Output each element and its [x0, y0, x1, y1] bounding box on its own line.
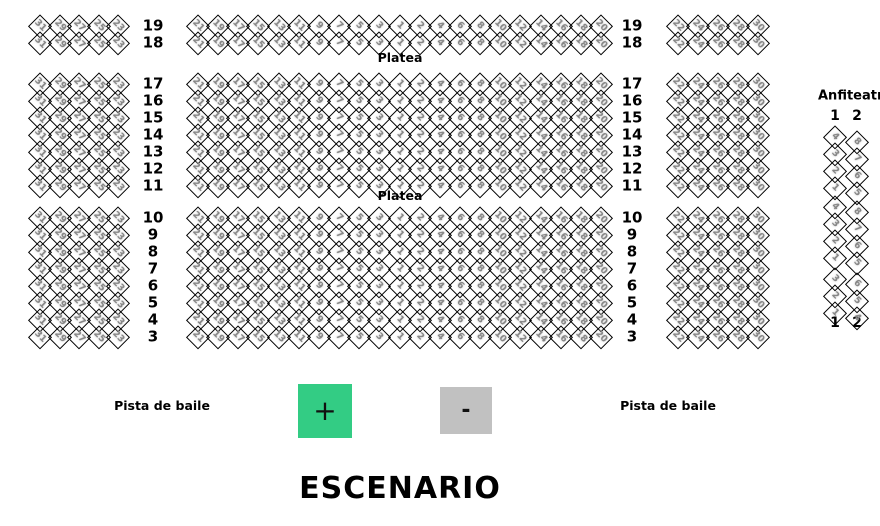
seat-number: 4 [434, 298, 445, 309]
seat-number: 3 [374, 113, 385, 124]
seat-number: 24 [690, 35, 705, 50]
seat-number: 6 [852, 171, 863, 182]
seat-number: 9 [313, 181, 324, 192]
seat-number: 8 [852, 207, 863, 218]
seat-number: 15 [251, 35, 266, 50]
row-number: 19 [622, 19, 643, 34]
seat-number: 6 [852, 241, 863, 252]
row-number: 11 [622, 179, 643, 194]
seat-number: 4 [434, 181, 445, 192]
seat-number: 1 [394, 332, 405, 343]
row-number: 4 [627, 313, 637, 328]
seat-number: 13 [271, 35, 286, 50]
seat-number: 1 [394, 230, 405, 241]
seat-number: 5 [354, 281, 365, 292]
row-number: 14 [143, 128, 164, 143]
seat-number: 5 [354, 298, 365, 309]
seat-number: 30 [750, 329, 765, 344]
seat-number: 22 [670, 178, 685, 193]
seat-number: 18 [573, 329, 588, 344]
seat-number: 19 [211, 178, 226, 193]
row-number: 18 [143, 36, 164, 51]
row-number: 6 [148, 279, 158, 294]
seat-number: 1 [394, 113, 405, 124]
seat-number: 5 [354, 247, 365, 258]
seat-number: 4 [434, 164, 445, 175]
seat-number: 21 [190, 178, 205, 193]
stage-label: ESCENARIO [299, 474, 501, 504]
seat-number: 21 [190, 329, 205, 344]
seat-number: 7 [334, 298, 345, 309]
seat-number: 2 [414, 281, 425, 292]
seat-number: 3 [374, 213, 385, 224]
seat-number: 3 [374, 38, 385, 49]
seat-number: 28 [730, 178, 745, 193]
seat-number: 3 [374, 264, 385, 275]
seat-number: 19 [211, 35, 226, 50]
seat-number: 8 [475, 130, 486, 141]
seat-number: 8 [475, 147, 486, 158]
seat-number: 9 [313, 96, 324, 107]
seat[interactable]: 20 [589, 174, 612, 197]
seat-number: 5 [354, 96, 365, 107]
seat-number: 8 [475, 164, 486, 175]
seat-number: 5 [354, 213, 365, 224]
seat-number: 1 [394, 96, 405, 107]
seat-number: 7 [334, 21, 345, 32]
seat-number: 3 [374, 147, 385, 158]
seat[interactable]: 20 [589, 31, 612, 54]
seat-number: 2 [414, 298, 425, 309]
seat-number: 2 [414, 164, 425, 175]
row-number: 3 [627, 330, 637, 345]
seat-number: 15 [251, 178, 266, 193]
seat-number: 6 [455, 315, 466, 326]
seat-number: 6 [455, 130, 466, 141]
seat-number: 6 [455, 264, 466, 275]
seat-number: 4 [852, 313, 863, 324]
seat[interactable]: 30 [746, 325, 769, 348]
zoom-in-button[interactable]: + [298, 384, 352, 438]
anfiteatro-seat[interactable]: 1 [823, 246, 846, 269]
dance-floor-label-left: Pista de baile [114, 400, 210, 413]
seat-number: 2 [414, 264, 425, 275]
seat-number: 28 [730, 35, 745, 50]
seat-number: 22 [670, 35, 685, 50]
seat-number: 1 [830, 183, 841, 194]
seat-number: 4 [434, 130, 445, 141]
seat-number: 5 [354, 38, 365, 49]
row-number: 8 [627, 245, 637, 260]
seat-number: 14 [533, 35, 548, 50]
seat-number: 18 [573, 178, 588, 193]
row-number: 16 [622, 94, 643, 109]
seat-number: 5 [354, 113, 365, 124]
seat-number: 7 [334, 38, 345, 49]
seating-area: 3129272523211917151311975312468101214161… [0, 0, 880, 526]
seat-number: 2 [414, 230, 425, 241]
seat-number: 13 [271, 178, 286, 193]
seat-number: 3 [374, 247, 385, 258]
seat-number: 20 [593, 35, 608, 50]
seat-number: 4 [434, 247, 445, 258]
seat-number: 9 [313, 213, 324, 224]
seat-number: 6 [455, 247, 466, 258]
seat-number: 4 [434, 281, 445, 292]
seat-number: 3 [374, 164, 385, 175]
seat-number: 16 [553, 178, 568, 193]
row-number: 5 [627, 296, 637, 311]
row-number: 15 [143, 111, 164, 126]
seat-number: 31 [32, 178, 47, 193]
anfiteatro-seat[interactable]: 4 [845, 306, 868, 329]
seat-number: 9 [313, 147, 324, 158]
seat-number: 8 [475, 281, 486, 292]
seat-number: 3 [830, 149, 841, 160]
seat-number: 8 [475, 21, 486, 32]
seat[interactable]: 30 [746, 174, 769, 197]
seat-number: 5 [354, 164, 365, 175]
seat-number: 6 [455, 230, 466, 241]
seat-number: 5 [354, 264, 365, 275]
seat-number: 7 [334, 79, 345, 90]
seat-number: 9 [313, 230, 324, 241]
dance-floor-label-right: Pista de baile [620, 400, 716, 413]
seat-number: 7 [334, 181, 345, 192]
seat-number: 7 [334, 164, 345, 175]
seat-number: 2 [830, 236, 841, 247]
seat-number: 4 [434, 21, 445, 32]
seat-number: 5 [852, 188, 863, 199]
seat-number: 26 [710, 35, 725, 50]
anfiteatro-label: Anfiteatro [818, 89, 880, 104]
seat-number: 5 [354, 230, 365, 241]
seat-number: 23 [110, 35, 125, 50]
seat-number: 29 [52, 329, 67, 344]
seat-number: 13 [271, 329, 286, 344]
seat-number: 24 [690, 329, 705, 344]
seat-number: 27 [71, 35, 86, 50]
seat-number: 7 [334, 230, 345, 241]
seat-number: 3 [374, 21, 385, 32]
row-number: 10 [143, 211, 164, 226]
seat-number: 5 [852, 258, 863, 269]
row-number: 12 [622, 162, 643, 177]
seat-number: 7 [334, 113, 345, 124]
seat-number: 9 [313, 315, 324, 326]
seat-number: 8 [475, 213, 486, 224]
seat-number: 9 [313, 264, 324, 275]
platea-label-top: Platea [378, 52, 423, 65]
seat-number: 1 [394, 79, 405, 90]
seat-number: 5 [354, 181, 365, 192]
seat-number: 2 [830, 291, 841, 302]
row-number: 13 [143, 145, 164, 160]
anfiteatro-column-header: 1 [830, 109, 840, 123]
seat-number: 27 [71, 329, 86, 344]
seat-number: 8 [475, 113, 486, 124]
seat-number: 12 [513, 329, 528, 344]
seat-number: 4 [434, 332, 445, 343]
seat-number: 3 [374, 281, 385, 292]
row-number: 4 [148, 313, 158, 328]
seat-number: 5 [354, 147, 365, 158]
anfiteatro-column-header: 2 [852, 109, 862, 123]
row-number: 17 [622, 77, 643, 92]
seat-number: 6 [455, 332, 466, 343]
seat-number: 14 [533, 178, 548, 193]
seat-number: 19 [211, 329, 226, 344]
seat-number: 7 [334, 315, 345, 326]
seat-number: 8 [852, 137, 863, 148]
seat-number: 9 [313, 247, 324, 258]
seat-number: 24 [690, 178, 705, 193]
seat-number: 8 [475, 38, 486, 49]
seat-number: 7 [334, 147, 345, 158]
seat-number: 7 [334, 281, 345, 292]
seat-number: 2 [414, 130, 425, 141]
seat-number: 27 [71, 178, 86, 193]
seat-number: 6 [455, 113, 466, 124]
seat-number: 3 [374, 332, 385, 343]
seat-number: 4 [434, 264, 445, 275]
seat-number: 6 [455, 147, 466, 158]
seat-number: 8 [475, 332, 486, 343]
row-number: 13 [622, 145, 643, 160]
seat-number: 5 [354, 315, 365, 326]
seat-number: 3 [830, 274, 841, 285]
seat-number: 4 [434, 79, 445, 90]
row-number: 7 [627, 262, 637, 277]
seat-number: 23 [110, 178, 125, 193]
row-number: 14 [622, 128, 643, 143]
seat-number: 23 [110, 329, 125, 344]
seat-number: 18 [573, 35, 588, 50]
seat-number: 4 [434, 315, 445, 326]
seat-number: 4 [434, 113, 445, 124]
seat-number: 2 [414, 147, 425, 158]
seat-number: 9 [313, 332, 324, 343]
seat[interactable]: 20 [589, 325, 612, 348]
seat-number: 6 [455, 298, 466, 309]
seat-number: 6 [455, 21, 466, 32]
seat-number: 29 [52, 35, 67, 50]
seat-number: 3 [374, 315, 385, 326]
row-number: 5 [148, 296, 158, 311]
seat-number: 1 [394, 38, 405, 49]
seat-number: 4 [434, 38, 445, 49]
row-number: 19 [143, 19, 164, 34]
seat-number: 17 [231, 35, 246, 50]
seat-number: 6 [455, 96, 466, 107]
seat-number: 6 [455, 181, 466, 192]
seat-number: 29 [52, 178, 67, 193]
row-number: 17 [143, 77, 164, 92]
seat-number: 6 [455, 281, 466, 292]
platea-label-middle: Platea [378, 190, 423, 203]
seat-number: 8 [475, 247, 486, 258]
seat-number: 6 [852, 279, 863, 290]
seat-number: 8 [475, 264, 486, 275]
seat-number: 7 [334, 130, 345, 141]
seat-number: 2 [414, 113, 425, 124]
seat-number: 30 [750, 35, 765, 50]
seat-number: 11 [291, 178, 306, 193]
row-number: 3 [148, 330, 158, 345]
seat-number: 8 [475, 230, 486, 241]
seat-number: 31 [32, 329, 47, 344]
seat-number: 6 [455, 164, 466, 175]
seat-number: 5 [354, 79, 365, 90]
seat-number: 20 [593, 329, 608, 344]
seat-number: 8 [475, 298, 486, 309]
seat-number: 2 [414, 79, 425, 90]
seat-map: 3129272523211917151311975312468101214161… [0, 0, 880, 526]
seat-number: 26 [710, 178, 725, 193]
seat-number: 6 [455, 79, 466, 90]
seat-number: 2 [414, 38, 425, 49]
seat-number: 25 [91, 329, 106, 344]
seat-number: 9 [313, 79, 324, 90]
seat-number: 1 [394, 281, 405, 292]
seat-number: 1 [394, 147, 405, 158]
seat-number: 3 [374, 79, 385, 90]
seat-number: 2 [830, 166, 841, 177]
seat[interactable]: 23 [106, 325, 129, 348]
anfiteatro-seat[interactable]: 1 [823, 301, 846, 324]
seat-number: 30 [750, 178, 765, 193]
seat-number: 4 [434, 96, 445, 107]
seat-number: 9 [313, 21, 324, 32]
seat-number: 9 [313, 130, 324, 141]
seat-number: 1 [394, 164, 405, 175]
seat-number: 20 [593, 178, 608, 193]
seat-number: 9 [313, 38, 324, 49]
seat-number: 3 [374, 298, 385, 309]
row-number: 15 [622, 111, 643, 126]
seat-number: 4 [434, 230, 445, 241]
seat-number: 21 [190, 35, 205, 50]
seat-number: 16 [553, 329, 568, 344]
seat-number: 7 [334, 247, 345, 258]
seat-number: 28 [730, 329, 745, 344]
row-number: 16 [143, 94, 164, 109]
seat-number: 8 [475, 181, 486, 192]
seat-number: 5 [354, 130, 365, 141]
seat-number: 2 [414, 21, 425, 32]
seat-number: 1 [394, 264, 405, 275]
seat-number: 9 [313, 281, 324, 292]
seat-number: 1 [830, 253, 841, 264]
seat-number: 1 [394, 130, 405, 141]
seat-number: 11 [291, 329, 306, 344]
seat-number: 1 [394, 213, 405, 224]
row-number: 6 [627, 279, 637, 294]
seat[interactable]: 23 [106, 31, 129, 54]
seat-number: 7 [334, 213, 345, 224]
seat-number: 5 [852, 296, 863, 307]
row-number: 8 [148, 245, 158, 260]
seat-number: 10 [493, 329, 508, 344]
seat-number: 9 [313, 113, 324, 124]
seat-number: 17 [231, 178, 246, 193]
seat-number: 31 [32, 35, 47, 50]
seat-number: 12 [513, 35, 528, 50]
seat-number: 7 [334, 264, 345, 275]
seat[interactable]: 30 [746, 31, 769, 54]
seat-number: 16 [553, 35, 568, 50]
seat-number: 1 [394, 298, 405, 309]
seat-number: 11 [291, 35, 306, 50]
row-number: 18 [622, 36, 643, 51]
seat-number: 3 [374, 130, 385, 141]
seat-number: 15 [251, 329, 266, 344]
seat-number: 1 [394, 315, 405, 326]
seat-number: 12 [513, 178, 528, 193]
seat-number: 14 [533, 329, 548, 344]
seat-number: 2 [414, 332, 425, 343]
seat-number: 22 [670, 329, 685, 344]
seat-number: 3 [374, 230, 385, 241]
row-number: 11 [143, 179, 164, 194]
row-number: 10 [622, 211, 643, 226]
seat-number: 2 [414, 213, 425, 224]
seat-number: 1 [394, 21, 405, 32]
seat-number: 6 [455, 213, 466, 224]
seat-number: 4 [830, 132, 841, 143]
seat-number: 7 [852, 224, 863, 235]
seat-number: 7 [852, 154, 863, 165]
seat-number: 9 [313, 164, 324, 175]
seat-number: 25 [91, 178, 106, 193]
zoom-out-button[interactable]: - [440, 387, 492, 434]
seat-number: 7 [334, 332, 345, 343]
seat-number: 2 [414, 315, 425, 326]
seat-number: 10 [493, 35, 508, 50]
seat-number: 3 [830, 219, 841, 230]
seat-number: 9 [313, 298, 324, 309]
seat-number: 2 [414, 96, 425, 107]
seat-number: 8 [475, 79, 486, 90]
seat-number: 5 [354, 21, 365, 32]
anfiteatro-seat[interactable]: 5 [845, 251, 868, 274]
seat-number: 1 [830, 308, 841, 319]
row-number: 12 [143, 162, 164, 177]
seat-number: 3 [374, 96, 385, 107]
seat-number: 7 [334, 96, 345, 107]
seat-number: 8 [475, 315, 486, 326]
seat-number: 25 [91, 35, 106, 50]
seat-number: 2 [414, 247, 425, 258]
seat[interactable]: 23 [106, 174, 129, 197]
seat-number: 4 [830, 202, 841, 213]
seat-number: 5 [354, 332, 365, 343]
row-number: 9 [627, 228, 637, 243]
seat-number: 4 [434, 213, 445, 224]
row-number: 9 [148, 228, 158, 243]
seat-number: 10 [493, 178, 508, 193]
seat-number: 26 [710, 329, 725, 344]
seat-number: 4 [434, 147, 445, 158]
seat-number: 1 [394, 247, 405, 258]
row-number: 7 [148, 262, 158, 277]
seat-number: 17 [231, 329, 246, 344]
seat-number: 6 [455, 38, 466, 49]
seat-number: 8 [475, 96, 486, 107]
